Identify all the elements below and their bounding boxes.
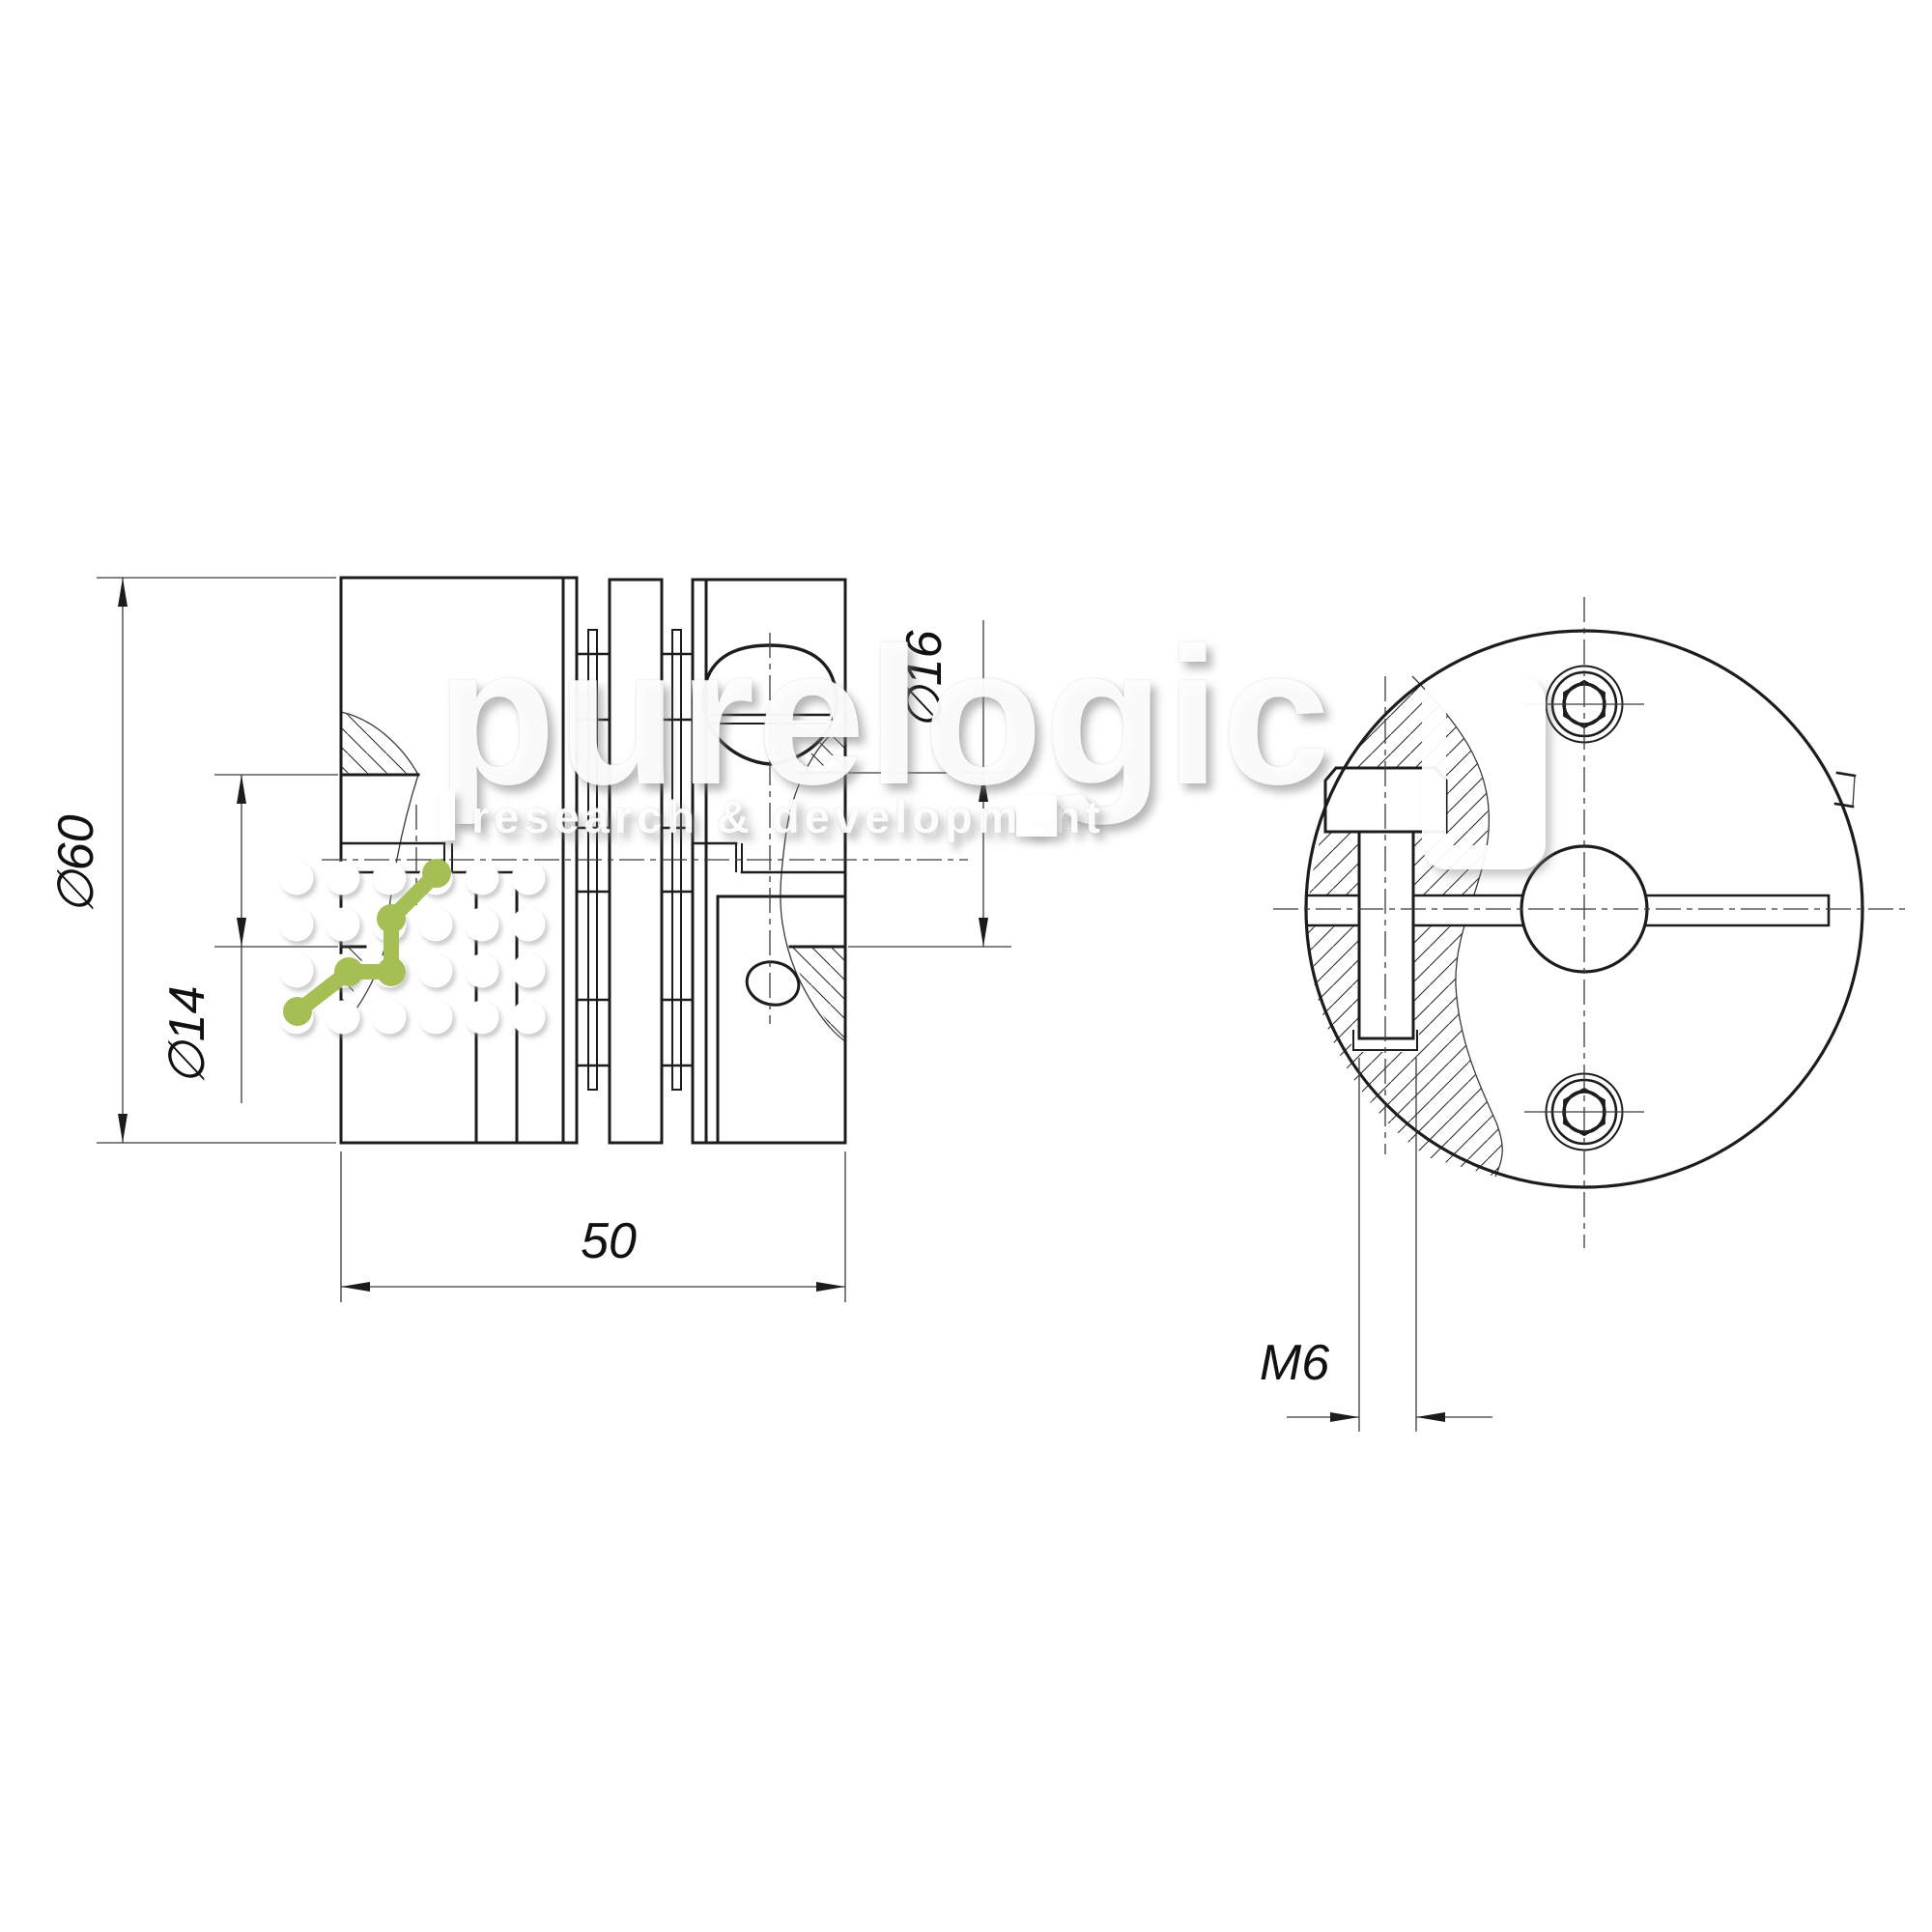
watermark-square <box>1016 796 1057 837</box>
watermark-brand: purelogic <box>437 618 1332 813</box>
watermark-bar <box>440 790 455 840</box>
watermark-graphics <box>0 0 1932 1932</box>
watermark-tagline: research & development <box>471 794 1105 839</box>
watermark-bracket-icon <box>1422 676 1546 869</box>
drawing-canvas: ∅60 ∅14 ∅16 50 <box>0 0 1932 1932</box>
